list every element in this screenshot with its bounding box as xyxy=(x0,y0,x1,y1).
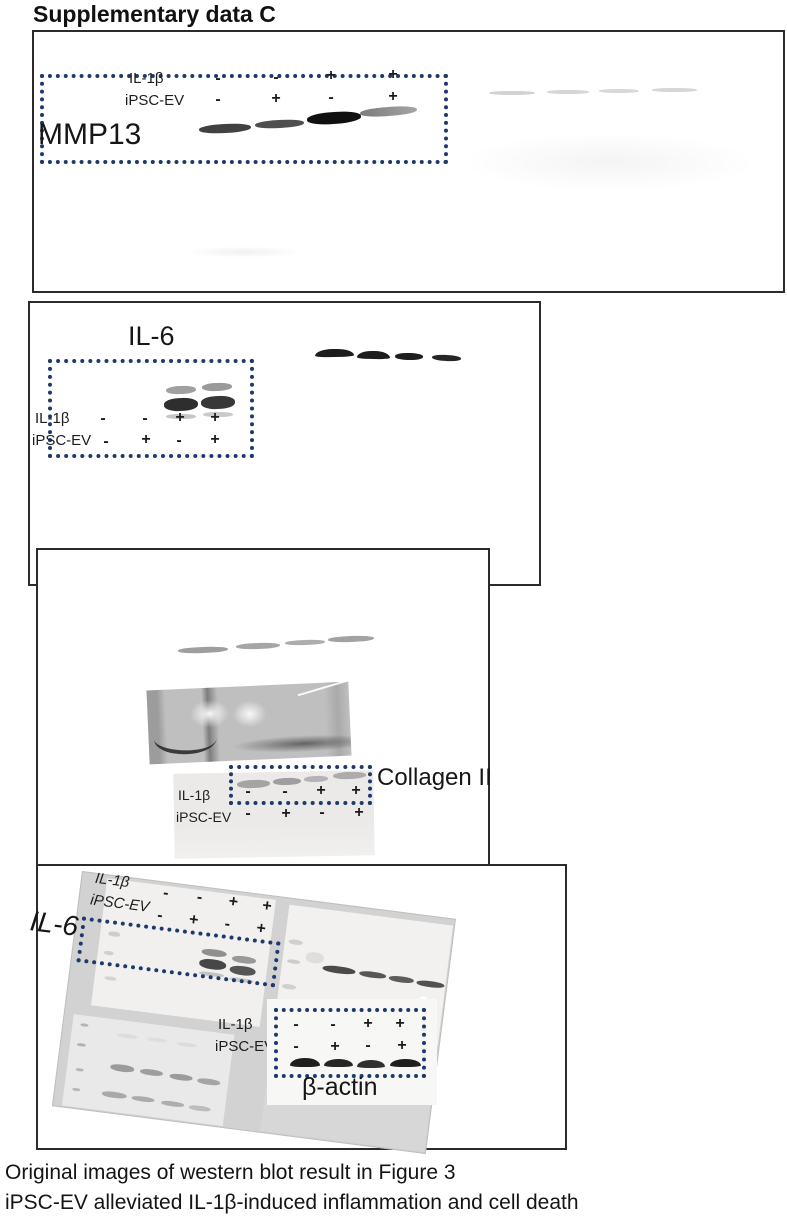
il6-right-band xyxy=(432,354,461,362)
bactin-row2-mark: + xyxy=(327,1038,343,1056)
il6-row1-label: IL-1β xyxy=(35,410,69,427)
il6-row1-mark: - xyxy=(95,410,111,428)
mmp13-faint-band xyxy=(547,90,589,94)
bactin-band-lane2 xyxy=(324,1059,353,1067)
il6-row1-mark: - xyxy=(137,410,153,428)
il6-row2-mark: - xyxy=(98,433,114,451)
collagen2-row1-mark: - xyxy=(240,783,256,801)
scan-row2-mark: - xyxy=(151,906,169,926)
bactin-row2-mark: + xyxy=(394,1037,410,1055)
il6-right-band xyxy=(395,353,423,360)
bactin-row2-mark: - xyxy=(288,1038,304,1056)
panel-il6: IL-6 IL-1β - - + + iPSC-EV - + - + xyxy=(28,301,541,586)
bactin-row1-mark: + xyxy=(360,1015,376,1033)
collagen2-label: Collagen II xyxy=(377,764,492,792)
il6-row1-mark: + xyxy=(172,409,188,427)
collagen2-top-band xyxy=(236,642,280,650)
mmp13-row1-mark: - xyxy=(210,70,226,88)
il6-right-band xyxy=(315,349,354,358)
collagen2-row2-mark: - xyxy=(314,804,330,822)
collagen2-top-band xyxy=(285,639,325,645)
il6-row2-mark: + xyxy=(138,431,154,449)
panel-composite: IL-1β - - + + iPSC-EV - + - + xyxy=(36,864,567,1150)
bactin-row1-label: IL-1β xyxy=(218,1016,252,1033)
collagen2-dark-blot-image xyxy=(146,682,351,765)
scan-row1-mark: + xyxy=(258,897,276,917)
scan-row2-mark: - xyxy=(218,915,236,935)
collagen2-row2-label: iPSC-EV xyxy=(176,809,231,826)
il6-row2-mark: - xyxy=(171,432,187,450)
bactin-row1-mark: - xyxy=(288,1016,304,1034)
collagen2-top-band xyxy=(328,635,374,643)
collagen2-row2-mark: - xyxy=(240,805,256,823)
collagen2-row1-mark: - xyxy=(277,783,293,801)
scan-row1-label-real: IL-1β xyxy=(94,870,130,891)
collagen2-row2-mark: + xyxy=(351,804,367,822)
mmp13-label: MMP13 xyxy=(38,118,141,152)
mmp13-row2-mark: + xyxy=(268,90,284,108)
bactin-row2-mark: - xyxy=(360,1037,376,1055)
bactin-band-lane1 xyxy=(290,1058,320,1067)
mmp13-faint-band xyxy=(599,89,639,93)
mmp13-row1-mark: + xyxy=(385,66,401,84)
collagen2-row1-mark: + xyxy=(348,782,364,800)
il6-row2-label: iPSC-EV xyxy=(32,432,91,449)
il6-label: IL-6 xyxy=(128,321,175,352)
mmp13-faint-band xyxy=(489,91,535,95)
mmp13-row2-mark: - xyxy=(210,91,226,109)
collagen2-top-band xyxy=(178,646,228,654)
panel-mmp13: IL-1β - - + + iPSC-EV - + - + MMP13 xyxy=(32,30,785,293)
bactin-label: β-actin xyxy=(302,1073,378,1102)
collagen2-row1-label: IL-1β xyxy=(178,787,210,804)
mmp13-row1-mark: + xyxy=(323,67,339,85)
scan-row2-mark: + xyxy=(185,911,203,931)
panel-collagen2: Collagen II IL-1β - - + + iPSC-EV - + - … xyxy=(36,548,490,868)
caption-line-2: iPSC-EV alleviated IL-1β-induced inflamm… xyxy=(5,1191,579,1215)
scan-row1-mark: - xyxy=(190,888,208,908)
bactin-row2-label: iPSC-EV xyxy=(215,1038,274,1055)
mmp13-faint-band xyxy=(652,88,697,92)
mmp13-row1-label: IL-1β xyxy=(129,70,163,87)
collagen2-row1-mark: + xyxy=(313,782,329,800)
il6-row2-mark: + xyxy=(207,431,223,449)
mmp13-row2-label: iPSC-EV xyxy=(125,92,184,109)
scan-row2-mark: + xyxy=(252,919,270,939)
mmp13-faint-smudge xyxy=(459,132,759,192)
bactin-band-lane4 xyxy=(390,1059,421,1067)
bactin-row1-mark: - xyxy=(325,1016,341,1034)
il6-row1-mark: + xyxy=(207,409,223,427)
dark-blot-scratch xyxy=(298,674,366,696)
il6-right-band xyxy=(357,351,390,360)
mmp13-row2-mark: + xyxy=(385,88,401,106)
caption-line-1: Original images of western blot result i… xyxy=(5,1161,456,1185)
scan-row1-mark: + xyxy=(224,893,242,913)
dark-blot-streak xyxy=(153,719,218,758)
collagen2-row2-mark: + xyxy=(278,805,294,823)
mmp13-faint-smudge xyxy=(184,246,304,258)
scan-row1-mark: - xyxy=(157,884,175,904)
bactin-row1-mark: + xyxy=(392,1015,408,1033)
bactin-band-lane3 xyxy=(357,1060,385,1068)
figure-title: Supplementary data C xyxy=(33,1,276,28)
mmp13-row1-mark: - xyxy=(268,69,284,87)
composite-il6-label: IL-6 xyxy=(28,905,80,943)
mmp13-row2-mark: - xyxy=(323,89,339,107)
